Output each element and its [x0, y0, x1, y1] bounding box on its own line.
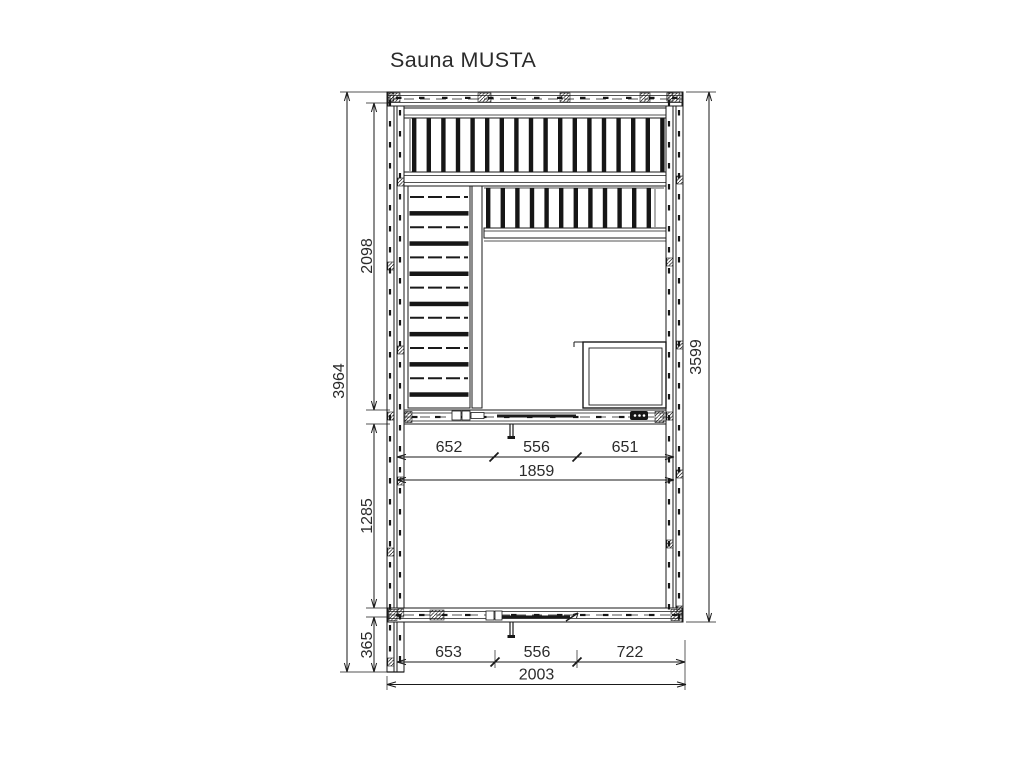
stove	[574, 342, 666, 408]
page-title: Sauna MUSTA	[390, 48, 536, 72]
dim-label-upper-depth: 2098	[359, 238, 376, 274]
title-group: Sauna MUSTA	[390, 48, 536, 72]
dim-label-lower-depth: 1285	[359, 498, 376, 534]
dim-label-upper-width-3: 651	[612, 439, 639, 456]
dim-label-upper-width-1: 652	[436, 439, 463, 456]
drawing-canvas: Sauna MUSTA39642098128536535996525566511…	[0, 0, 1024, 768]
dim-label-lower-total: 2003	[519, 667, 555, 684]
dim-label-overhang: 365	[359, 632, 376, 659]
dim-label-overall-height: 3964	[331, 363, 348, 399]
dim-label-lower-width-2: 556	[524, 644, 551, 661]
dim-label-upper-width-2: 556	[523, 439, 550, 456]
dim-label-upper-total: 1859	[519, 463, 555, 480]
dim-label-lower-width-3: 722	[617, 644, 644, 661]
dim-label-right-height: 3599	[688, 339, 705, 375]
dim-label-lower-width-1: 653	[435, 644, 462, 661]
floor-plan-svg: Sauna MUSTA39642098128536535996525566511…	[0, 0, 1024, 768]
